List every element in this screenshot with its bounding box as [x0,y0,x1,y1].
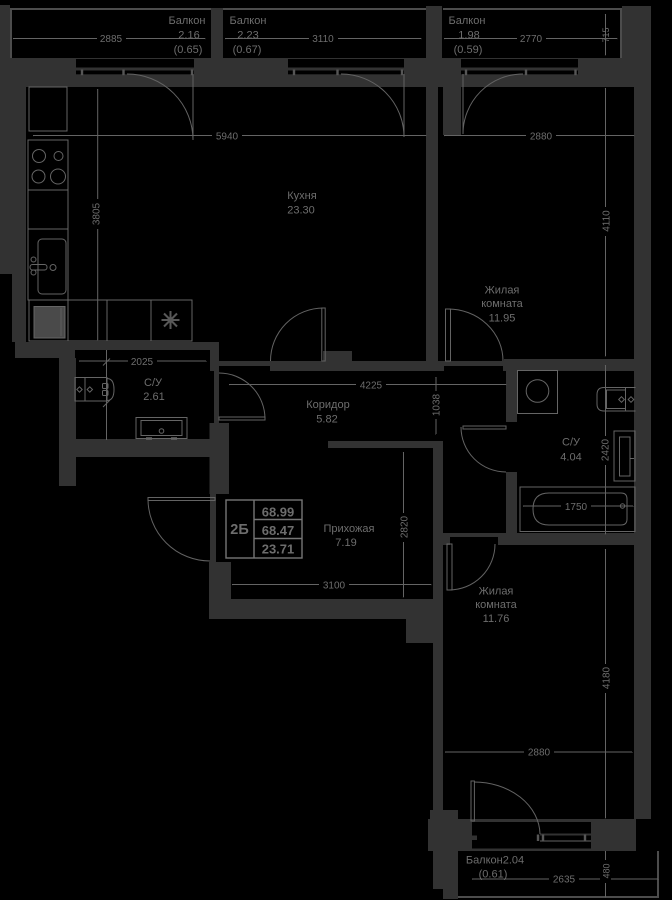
svg-text:3100: 3100 [323,581,346,592]
svg-text:2820: 2820 [400,515,411,538]
svg-text:Балкон: Балкон [449,15,486,27]
svg-text:5940: 5940 [216,132,239,143]
svg-text:1038: 1038 [432,393,443,416]
svg-text:Балкон: Балкон [230,15,267,27]
svg-text:2635: 2635 [553,875,576,886]
svg-text:23.71: 23.71 [262,542,295,557]
svg-text:(0.59): (0.59) [454,44,483,56]
svg-text:2420: 2420 [601,438,612,461]
svg-text:23.30: 23.30 [287,205,315,217]
svg-text:Балкон: Балкон [169,15,206,27]
svg-text:4225: 4225 [360,381,383,392]
svg-text:11.95: 11.95 [489,313,516,325]
svg-text:Жилая: Жилая [479,586,514,598]
svg-text:2.23: 2.23 [237,30,258,42]
svg-text:комната: комната [475,599,517,611]
svg-text:Кухня: Кухня [287,190,316,202]
svg-text:2770: 2770 [520,34,543,45]
svg-text:7.19: 7.19 [335,537,356,549]
svg-text:3110: 3110 [312,34,334,45]
svg-text:480: 480 [602,863,612,878]
svg-text:4.04: 4.04 [560,452,581,464]
svg-text:С/У: С/У [144,377,163,389]
svg-text:2880: 2880 [530,132,553,143]
svg-text:(0.67): (0.67) [233,44,262,56]
svg-text:Балкон2.04: Балкон2.04 [466,855,524,867]
svg-text:комната: комната [481,298,523,310]
svg-text:2.16: 2.16 [178,30,199,42]
svg-text:5.82: 5.82 [316,414,337,426]
svg-text:С/У: С/У [562,437,581,449]
svg-text:1750: 1750 [565,502,588,513]
svg-text:Прихожая: Прихожая [324,523,375,535]
svg-text:2880: 2880 [528,748,551,759]
svg-text:(0.65): (0.65) [174,44,203,56]
svg-text:2.61: 2.61 [143,391,164,403]
svg-text:Коридор: Коридор [306,399,349,411]
svg-text:68.47: 68.47 [262,523,295,538]
svg-text:1.98: 1.98 [458,30,479,42]
svg-text:715: 715 [601,27,611,42]
svg-text:(0.61): (0.61) [479,869,508,881]
svg-text:Жилая: Жилая [485,285,520,297]
svg-text:4180: 4180 [602,666,613,689]
svg-text:2Б: 2Б [230,522,249,538]
svg-text:4110: 4110 [602,210,613,232]
svg-text:2885: 2885 [100,34,123,45]
svg-text:11.76: 11.76 [483,613,510,625]
svg-text:2025: 2025 [131,357,154,368]
svg-text:3805: 3805 [92,202,103,225]
svg-text:68.99: 68.99 [262,505,295,520]
